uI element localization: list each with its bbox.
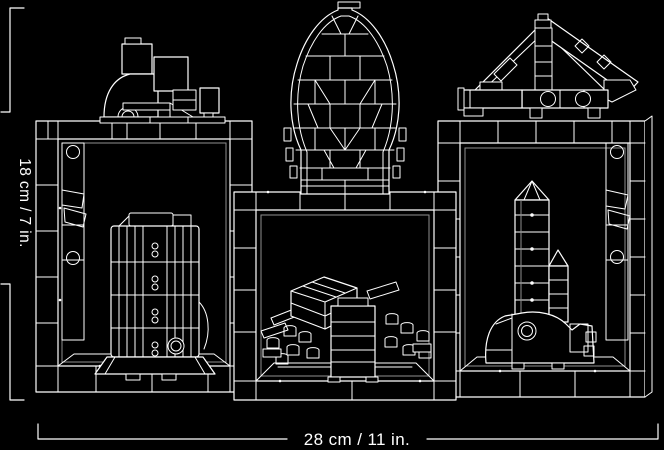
- height-dimension-label: 18 cm / 7 in.: [16, 158, 33, 248]
- width-dimension-label: 28 cm / 11 in.: [304, 430, 410, 449]
- wheel-icon: [541, 92, 556, 107]
- camera-rover-model: [100, 38, 225, 123]
- left-display-box: [36, 121, 252, 392]
- porthole-icon: [518, 322, 536, 340]
- base-plate: [100, 117, 225, 123]
- height-dimension: 18 cm / 7 in.: [1, 8, 33, 400]
- right-box-depth-edge: [645, 116, 652, 397]
- ramp-sled-model: [458, 14, 638, 118]
- ramp-bottom-bar: [522, 90, 608, 108]
- wheel-icon: [576, 92, 591, 107]
- center-display-box: [234, 191, 456, 400]
- line-art-canvas: 18 cm / 7 in. 28 cm / 11 in.: [0, 0, 664, 450]
- lego-dimension-diagram: 18 cm / 7 in. 28 cm / 11 in.: [0, 0, 664, 450]
- central-stack: [331, 306, 375, 377]
- width-dimension: 28 cm / 11 in.: [38, 424, 658, 449]
- tall-rocket-body: [515, 200, 549, 322]
- lander-tower-model: [95, 213, 215, 380]
- ramp-center-post: [535, 28, 552, 90]
- tower-body: [111, 226, 199, 357]
- wheel-icon: [168, 338, 184, 354]
- ramp-left-arm: [462, 90, 522, 108]
- dome-brick: [104, 74, 158, 117]
- right-display-box: [438, 116, 652, 397]
- astronaut-helmet-model: [284, 2, 406, 194]
